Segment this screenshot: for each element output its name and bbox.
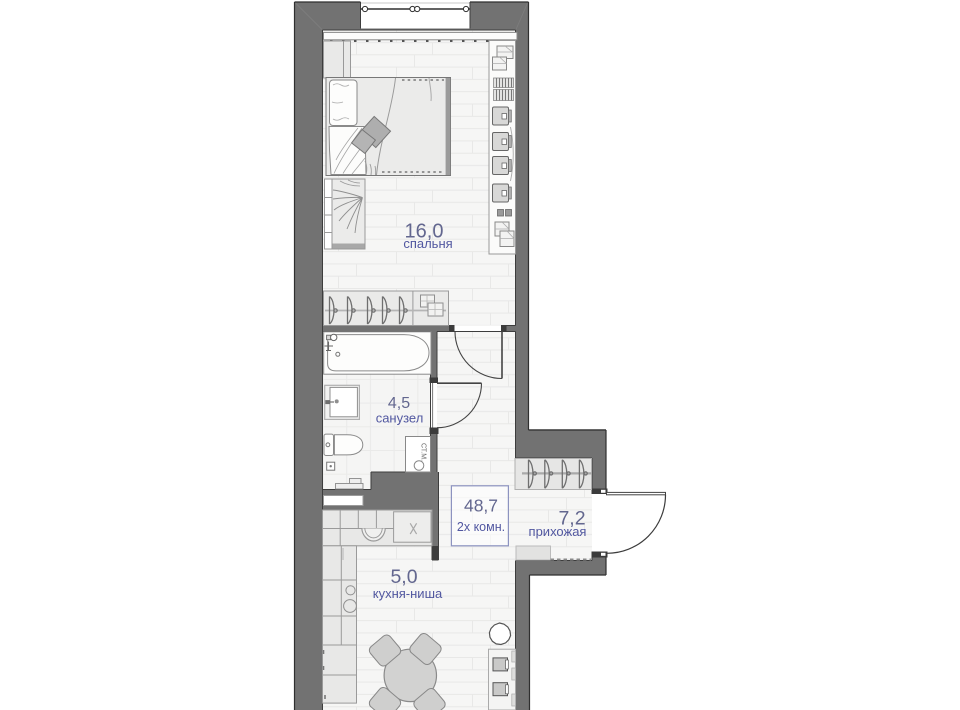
svg-text:спальня: спальня (403, 236, 452, 251)
svg-text:2х комн.: 2х комн. (457, 520, 505, 534)
svg-text:5,0: 5,0 (390, 566, 417, 588)
svg-text:СТ.М.: СТ.М. (420, 443, 427, 461)
svg-text:4,5: 4,5 (388, 395, 410, 412)
svg-text:кухня-ниша: кухня-ниша (373, 586, 443, 601)
svg-text:санузел: санузел (376, 410, 424, 425)
svg-text:48,7: 48,7 (464, 495, 498, 515)
svg-text:прихожая: прихожая (529, 524, 587, 539)
